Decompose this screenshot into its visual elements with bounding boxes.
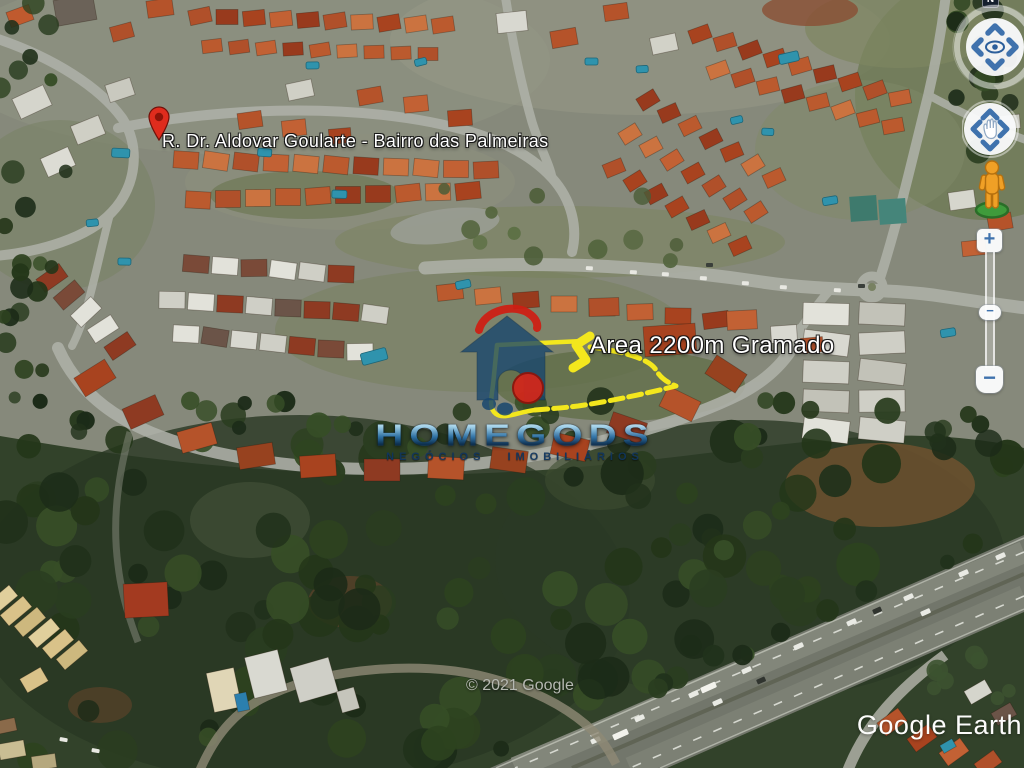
placemark-pin-icon[interactable] bbox=[148, 106, 170, 142]
google-earth-viewport: R. Dr. Aldovar Goularte - Bairro das Pal… bbox=[0, 0, 1024, 768]
pegman-icon[interactable] bbox=[972, 158, 1014, 220]
zoom-out-button[interactable]: − bbox=[976, 366, 1003, 393]
move-joystick[interactable] bbox=[962, 100, 1020, 160]
zoom-in-button[interactable]: + bbox=[977, 229, 1002, 252]
zoom-slider-handle[interactable]: − bbox=[979, 305, 1001, 320]
look-joystick[interactable] bbox=[950, 2, 1024, 94]
